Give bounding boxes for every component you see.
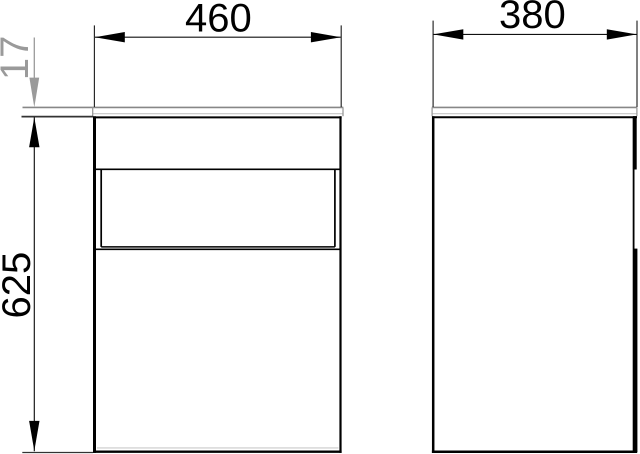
svg-text:17: 17 (0, 36, 37, 81)
svg-text:380: 380 (499, 0, 566, 37)
svg-text:625: 625 (0, 252, 39, 319)
svg-text:460: 460 (185, 0, 252, 40)
